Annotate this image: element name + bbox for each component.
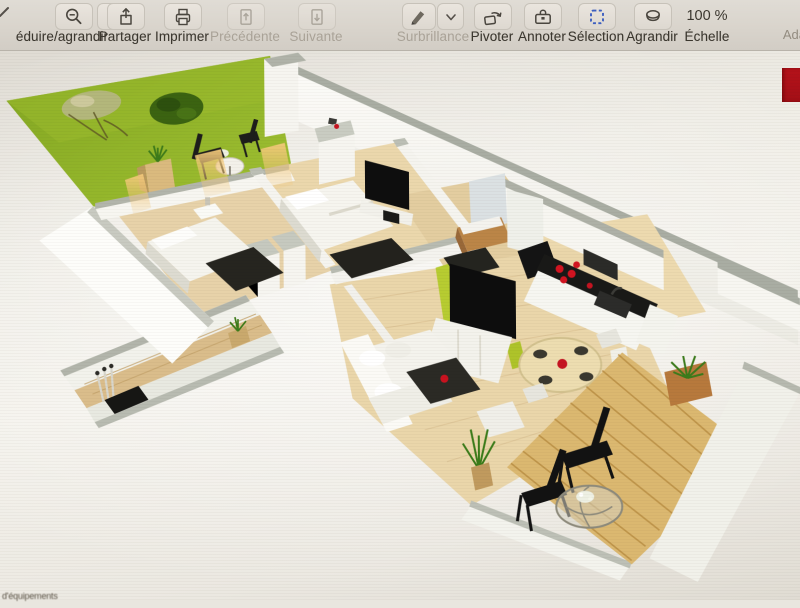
highlight-button[interactable] [402, 3, 436, 30]
document-canvas[interactable]: d'équipements [0, 51, 800, 600]
page-down-icon [307, 7, 327, 27]
toolbox-icon [533, 7, 553, 27]
page-up-icon [236, 7, 256, 27]
clipped-right-label: Ada [783, 27, 800, 42]
red-badge [782, 68, 800, 102]
scale-label: Échelle [647, 29, 767, 44]
printer-icon [173, 7, 193, 27]
highlighter-icon [409, 7, 429, 27]
zoom-out-button[interactable] [55, 3, 93, 30]
selection-dashed-rect-icon [587, 7, 607, 27]
loupe-icon [643, 7, 663, 27]
clipped-button-edge-icon [0, 6, 12, 24]
highlight-dropdown-button[interactable] [437, 3, 464, 30]
floor-plan-image [0, 48, 800, 603]
floor-plan-svg [0, 48, 800, 603]
magnifier-minus-icon [64, 7, 84, 27]
scale-value: 100 % [686, 8, 727, 24]
next-page-label: Suivante [256, 29, 376, 44]
toolbar: éduire/agrandir Partager Imprimer [0, 0, 800, 51]
chevron-down-icon [443, 9, 459, 25]
preview-window: { "app": { "toolbar": { "zoom_group": { … [0, 0, 800, 600]
rotate-left-icon [482, 7, 504, 27]
share-icon [116, 7, 136, 27]
